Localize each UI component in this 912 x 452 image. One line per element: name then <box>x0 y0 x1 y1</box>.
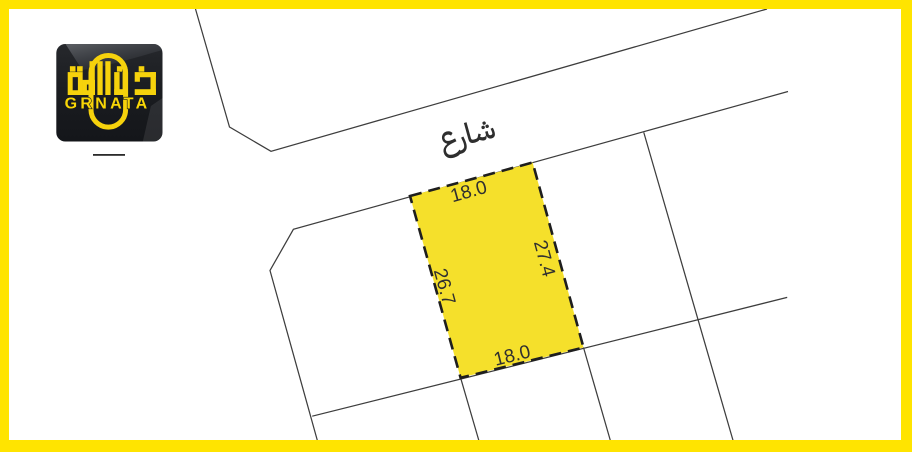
svg-text:GRNATA: GRNATA <box>65 95 151 112</box>
